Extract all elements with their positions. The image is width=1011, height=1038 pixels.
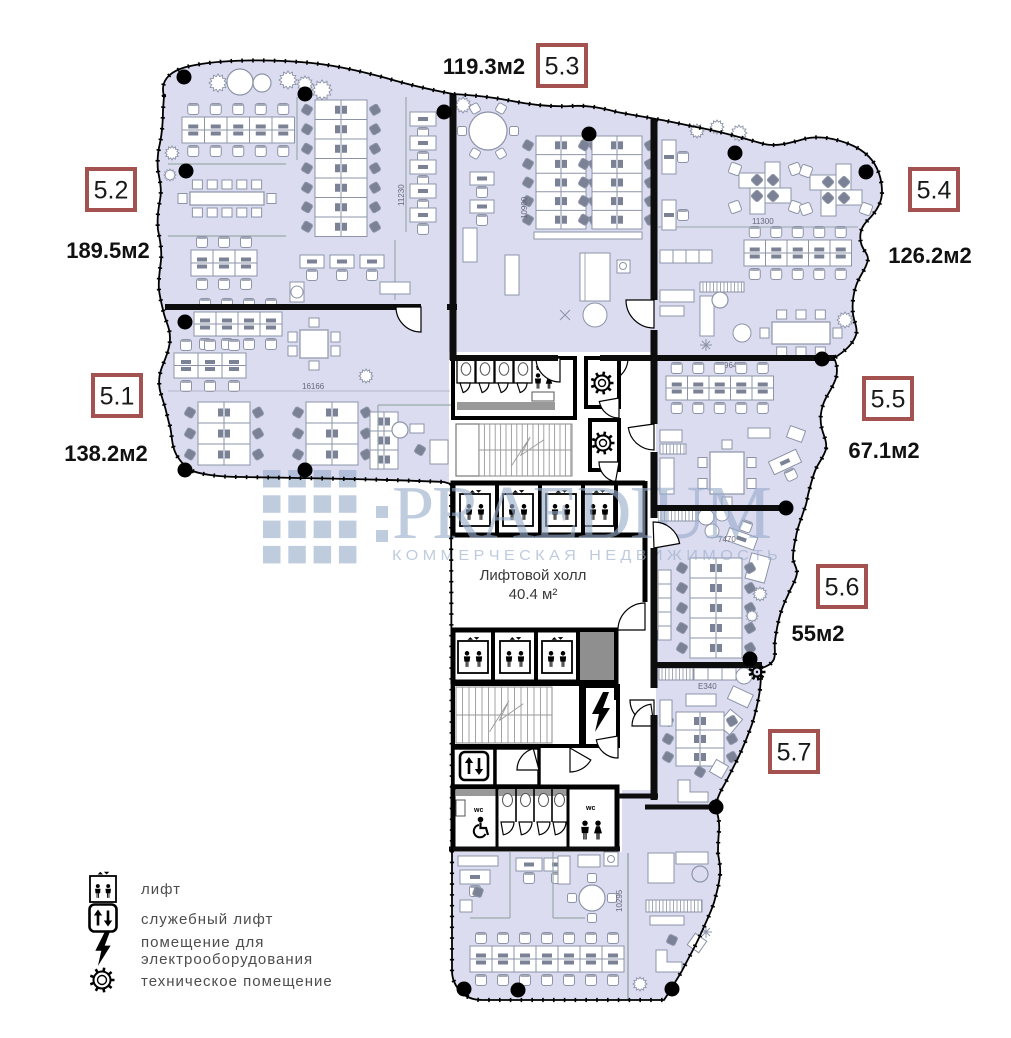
svg-text:помещение для: помещение для	[141, 934, 264, 951]
svg-text:40.4 м²: 40.4 м²	[509, 586, 558, 603]
svg-text:138.2м2: 138.2м2	[64, 441, 148, 466]
svg-text:11300: 11300	[752, 217, 774, 226]
svg-text:5.2: 5.2	[94, 177, 129, 205]
svg-text:5.5: 5.5	[871, 386, 906, 414]
svg-text:189.5м2: 189.5м2	[66, 238, 150, 263]
svg-text:11230: 11230	[397, 184, 406, 206]
svg-text:67.1м2: 67.1м2	[848, 438, 919, 463]
svg-text:10295: 10295	[615, 889, 624, 912]
svg-text:5.7: 5.7	[777, 739, 812, 767]
svg-text:E340: E340	[698, 682, 717, 691]
svg-text:55м2: 55м2	[792, 621, 845, 646]
svg-text:16166: 16166	[302, 382, 325, 391]
svg-text:техническое помещение: техническое помещение	[141, 973, 333, 990]
svg-text:5.6: 5.6	[825, 574, 860, 602]
svg-text:5.4: 5.4	[917, 177, 952, 205]
svg-text:лифт: лифт	[141, 881, 181, 898]
svg-text:электрооборудования: электрооборудования	[141, 951, 313, 968]
svg-text:Лифтовой холл: Лифтовой холл	[480, 567, 587, 584]
svg-text:126.2м2: 126.2м2	[888, 243, 972, 268]
svg-text:5.3: 5.3	[545, 53, 580, 81]
svg-text:119.3м2: 119.3м2	[443, 54, 525, 79]
svg-text:wc: wc	[473, 807, 483, 814]
svg-text:wc: wc	[585, 805, 595, 812]
svg-text:5.1: 5.1	[100, 383, 135, 411]
svg-text:служебный лифт: служебный лифт	[141, 911, 273, 928]
svg-text:10900: 10900	[520, 196, 529, 219]
